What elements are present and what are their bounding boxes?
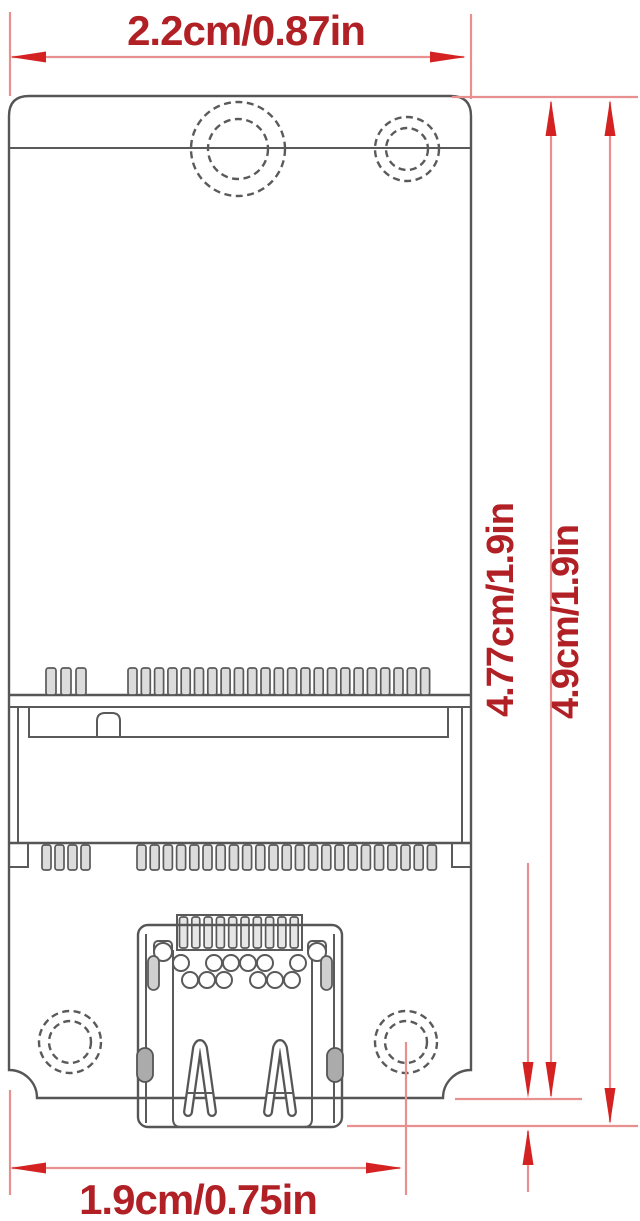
connector-pin xyxy=(295,845,304,870)
arrowhead-gap-down xyxy=(523,1062,534,1098)
connector-pin xyxy=(229,845,238,870)
connector-pin xyxy=(256,845,265,870)
dimension-drawing: 2.2cm/0.87in 4.77cm/1.9in 4.9cm/1.9in 1.… xyxy=(0,0,640,1221)
connector-pin xyxy=(81,845,90,870)
pin-group-row2-main xyxy=(137,845,436,870)
connector-pin xyxy=(341,668,350,695)
usb-pad-lower-left xyxy=(137,1048,153,1082)
connector-pin xyxy=(42,845,51,870)
arrowhead-bottom-left xyxy=(10,1163,46,1174)
connector-pin xyxy=(234,668,243,695)
row2-notch-right xyxy=(452,843,470,867)
arrowhead-gap-up xyxy=(523,1129,534,1165)
board-drawing xyxy=(9,96,471,1127)
connector-pin xyxy=(278,917,286,948)
connector-pin xyxy=(388,845,397,870)
connector-pin xyxy=(361,845,370,870)
connector-pin xyxy=(253,917,261,948)
solder-contact-dot xyxy=(216,972,232,988)
connector-pin xyxy=(314,668,323,695)
connector-pin xyxy=(381,668,390,695)
arrowhead-board-top xyxy=(546,100,557,136)
connector-pin xyxy=(274,668,283,695)
adapter-board-diagram: 2.2cm/0.87in 4.77cm/1.9in 4.9cm/1.9in 1.… xyxy=(0,0,640,1221)
connector-pin xyxy=(180,917,188,948)
connector-pin xyxy=(203,845,212,870)
connector-pin xyxy=(221,668,230,695)
connector-pin xyxy=(243,845,252,870)
socket-profile xyxy=(29,707,448,737)
solder-contact-dot xyxy=(182,972,198,988)
connector-pin xyxy=(394,668,403,695)
usb-rib-pins xyxy=(180,917,299,948)
connector-pin xyxy=(309,845,318,870)
arrowhead-overall-top xyxy=(605,100,616,136)
connector-pin xyxy=(354,668,363,695)
connector-pin xyxy=(208,668,217,695)
connector-pin xyxy=(68,845,77,870)
connector-pin xyxy=(407,668,416,695)
connector-pin xyxy=(367,668,376,695)
connector-pin xyxy=(46,668,56,695)
arrowhead-overall-bottom xyxy=(605,1088,616,1124)
connector-pin xyxy=(192,917,200,948)
solder-contact-dot xyxy=(290,955,306,971)
connector-pin xyxy=(335,845,344,870)
dimension-annotations: 2.2cm/0.87in 4.77cm/1.9in 4.9cm/1.9in 1.… xyxy=(10,7,638,1221)
connector-pin xyxy=(216,845,225,870)
usb-port xyxy=(137,915,343,1127)
arrowhead-bottom-right xyxy=(366,1163,402,1174)
connector-pin xyxy=(241,917,249,948)
connector-pin xyxy=(375,845,384,870)
solder-contact-dot xyxy=(284,972,300,988)
solder-contact-dot xyxy=(250,972,266,988)
connector-pin xyxy=(141,668,150,695)
connector-pin xyxy=(190,845,199,870)
connector-pin xyxy=(137,845,146,870)
connector-pin xyxy=(421,668,430,695)
socket-key-notch xyxy=(97,713,120,737)
connector-pin xyxy=(76,668,86,695)
connector-pin xyxy=(322,845,331,870)
usb-pad-upper-right xyxy=(321,956,332,990)
dim-label-board-height: 4.77cm/1.9in xyxy=(480,503,522,717)
connector-pin xyxy=(328,668,337,695)
connector-pin xyxy=(401,845,410,870)
connector-pin xyxy=(282,845,291,870)
pin-group-row1-left xyxy=(46,668,86,695)
row2-notch-left xyxy=(10,843,28,867)
connector-pin xyxy=(128,668,137,695)
connector-pin xyxy=(261,668,270,695)
solder-contact-dot xyxy=(257,955,273,971)
connector-pin xyxy=(155,668,164,695)
connector-pin xyxy=(61,668,71,695)
arrowhead-board-bottom xyxy=(546,1062,557,1098)
connector-pin xyxy=(204,917,212,948)
pin-group-row2-left xyxy=(42,845,90,870)
usb-pad-lower-right xyxy=(327,1048,343,1082)
dim-label-bottom-width: 1.9cm/0.75in xyxy=(79,1176,317,1221)
dim-label-overall-height: 4.9cm/1.9in xyxy=(545,525,587,719)
connector-pin xyxy=(301,668,310,695)
connector-pin xyxy=(216,917,224,948)
mounting-hole-bottom-left-inner xyxy=(49,1021,91,1063)
solder-contact-dot xyxy=(267,972,283,988)
connector-pin xyxy=(269,845,278,870)
connector-pin xyxy=(290,917,298,948)
connector-pin xyxy=(177,845,186,870)
arrowhead-left xyxy=(10,52,46,63)
connector-pin xyxy=(181,668,190,695)
connector-pin xyxy=(150,845,159,870)
connector-pin xyxy=(427,845,436,870)
connector-pin xyxy=(195,668,204,695)
connector-pin xyxy=(168,668,177,695)
board-outline xyxy=(9,96,471,1098)
solder-contact-dot xyxy=(206,955,222,971)
connector-pin xyxy=(266,917,274,948)
solder-contact-dot xyxy=(223,955,239,971)
connector-pin xyxy=(348,845,357,870)
connector-pin xyxy=(288,668,297,695)
arrowhead-right xyxy=(430,52,466,63)
connector-pin xyxy=(414,845,423,870)
connector-pin xyxy=(55,845,64,870)
solder-contact-dot xyxy=(199,972,215,988)
solder-contact-dot xyxy=(173,955,189,971)
solder-contact-dot xyxy=(240,955,256,971)
dim-label-top-width: 2.2cm/0.87in xyxy=(127,7,365,54)
usb-pad-upper-left xyxy=(148,956,159,990)
connector-pin xyxy=(229,917,237,948)
pin-group-row1-main xyxy=(128,668,430,695)
connector-pin xyxy=(163,845,172,870)
connector-pin xyxy=(248,668,257,695)
